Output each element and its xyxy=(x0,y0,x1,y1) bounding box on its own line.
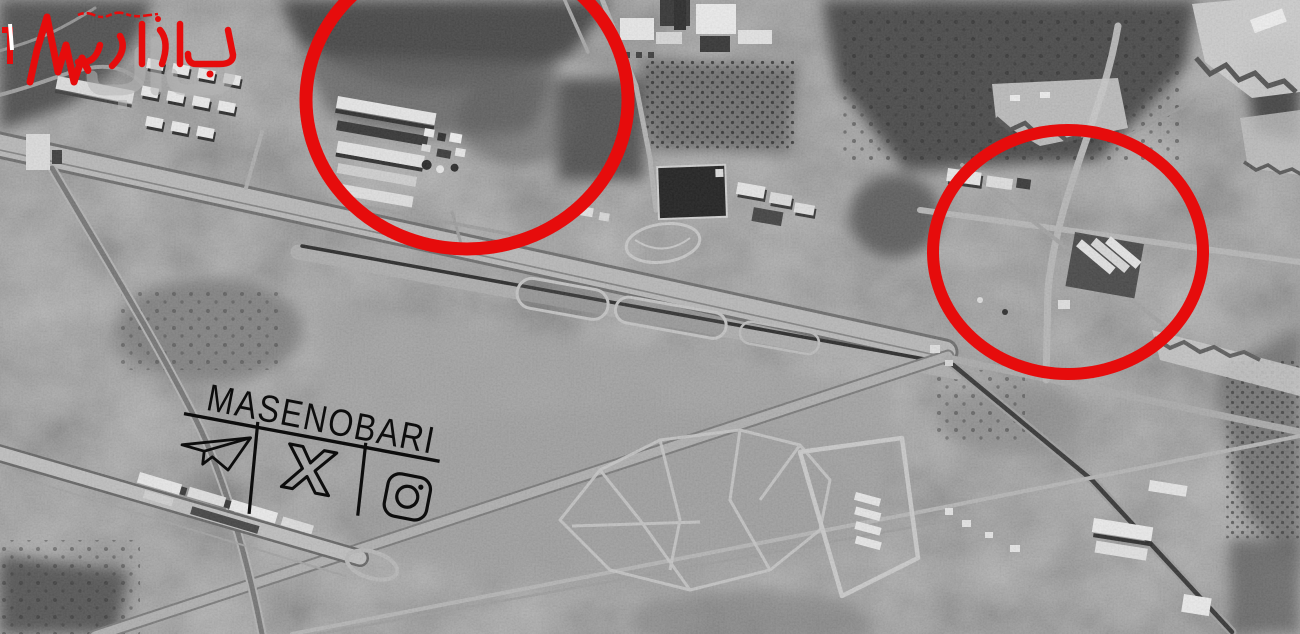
logo-white-mark xyxy=(10,24,12,50)
satellite-photo: MASENOBARI xyxy=(0,0,1300,634)
annotated-satellite-image: MASENOBARI xyxy=(0,0,1300,634)
